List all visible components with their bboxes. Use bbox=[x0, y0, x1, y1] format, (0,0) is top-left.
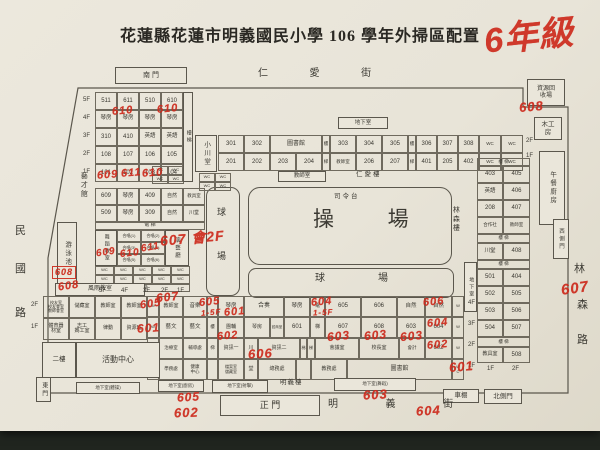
map-label: 2F bbox=[526, 138, 533, 144]
room-cell: 206 bbox=[356, 153, 382, 171]
room-cell: 504 bbox=[477, 320, 503, 337]
room-cell: 圖書館 bbox=[270, 135, 322, 153]
room-cell: 英語 bbox=[161, 128, 183, 146]
room-cell: 樓 梯 bbox=[477, 234, 530, 243]
room-cell: WC bbox=[95, 266, 114, 275]
room-cell: 401 bbox=[416, 153, 437, 171]
room-cell: 402 bbox=[458, 153, 479, 171]
room-cell: 405 bbox=[503, 166, 530, 183]
room-cell: 樓 bbox=[408, 135, 416, 153]
room-cell: WC bbox=[199, 173, 215, 182]
room-cell: 樓 梯 bbox=[477, 337, 530, 347]
room-cell: 輔導處 bbox=[183, 338, 207, 359]
red-annotation: 601 bbox=[224, 306, 246, 319]
grid-row: W C學務處健康 中心檔案室 儲藏室堂總務處教務處圖書館W C bbox=[147, 359, 464, 380]
map-label: 2F bbox=[83, 151, 90, 157]
map-label: 3F bbox=[143, 288, 150, 294]
room-cell: 108 bbox=[95, 146, 117, 164]
grid-row: 501404 bbox=[477, 269, 530, 286]
room-cell: 堂 bbox=[244, 359, 258, 380]
grid-row: 504507 bbox=[477, 320, 530, 337]
red-annotation: 610 bbox=[120, 248, 141, 260]
red-annotation: 607 bbox=[155, 290, 179, 304]
room-cell: 梯 bbox=[322, 153, 330, 171]
grid-row: W教師室音樂琴房合奏琴房電605606自然自然W bbox=[147, 296, 464, 317]
building-box: 樓梯 bbox=[183, 92, 193, 182]
red-annotation: 606 bbox=[248, 346, 273, 360]
room-cell: W bbox=[452, 296, 464, 317]
red-annotation: 603 bbox=[326, 329, 350, 343]
room-cell: WC bbox=[152, 275, 171, 284]
room-cell: 梯 bbox=[207, 338, 218, 359]
room-cell: 407 bbox=[503, 200, 530, 217]
room-cell: 203 bbox=[270, 153, 296, 171]
room-cell: 教務處 bbox=[311, 359, 347, 380]
red-annotation: 1-5F bbox=[313, 308, 334, 317]
room-cell: 508 bbox=[503, 347, 530, 363]
room-cell: 圖書館 bbox=[347, 359, 452, 380]
room-cell: 合奏 bbox=[244, 296, 284, 317]
paper-document: 花蓮縣花蓮市明義國民小學 106 學年外掃區配置 6年級 51161151061… bbox=[0, 0, 600, 431]
room-cell: WC bbox=[501, 135, 523, 153]
room-cell: WC bbox=[171, 275, 190, 284]
room-cell: 梯 bbox=[300, 338, 307, 359]
room-cell: 學務處 bbox=[159, 359, 183, 380]
map-label: 2F bbox=[468, 342, 475, 348]
room-cell: 204 bbox=[296, 153, 322, 171]
room-cell: W bbox=[452, 317, 464, 338]
room-cell: 檔案室 儲藏室 bbox=[218, 359, 244, 380]
building-box: 木工 房 bbox=[534, 117, 562, 140]
red-annotation: 604 bbox=[427, 317, 449, 330]
map-label: 球 bbox=[315, 274, 325, 285]
grid-row: WCWC bbox=[199, 173, 231, 182]
room-cell: 自然 bbox=[161, 188, 183, 205]
grid-row: 609琴房409自然教具室 bbox=[95, 188, 205, 205]
map-label: 林森樓 bbox=[452, 206, 459, 233]
room-cell: 106 bbox=[139, 146, 161, 164]
building-box: 正 門 bbox=[220, 395, 320, 416]
room-cell: 309 bbox=[139, 205, 161, 222]
room-cell: 207 bbox=[382, 153, 408, 171]
grid-row: WCWCWCWCWC bbox=[95, 266, 190, 275]
room-cell: 306 bbox=[416, 135, 437, 153]
red-annotation: 602 bbox=[427, 339, 449, 352]
room-cell: 310 bbox=[95, 128, 117, 146]
room-cell: 409 bbox=[139, 188, 161, 205]
grid-row: 樓 梯 bbox=[477, 234, 530, 243]
room-cell: 301 bbox=[218, 135, 244, 153]
building-box: 南 門 bbox=[115, 67, 187, 84]
map-label: 場 bbox=[378, 274, 388, 285]
room-cell: 304 bbox=[356, 135, 382, 153]
room-cell: 教師室 bbox=[95, 296, 121, 318]
red-annotation: 602 bbox=[217, 330, 239, 343]
room-cell bbox=[296, 359, 311, 380]
red-annotation: 607 bbox=[560, 279, 590, 298]
building-box: 地下室(體操) bbox=[76, 382, 140, 394]
room-cell: 教師室 bbox=[503, 217, 530, 234]
map-label: 路 bbox=[577, 335, 588, 347]
room-cell: 藝文 bbox=[183, 317, 207, 338]
grid-row: 310410英語英語 bbox=[95, 128, 183, 146]
red-annotation: 605 bbox=[177, 390, 201, 403]
map-label: 森 bbox=[577, 300, 588, 312]
room-cell: 609 bbox=[95, 188, 117, 205]
building-box: 地下室 bbox=[338, 117, 388, 129]
building-box: 午餐廚房 bbox=[539, 151, 565, 225]
building-box: 地下室(射擊) bbox=[212, 380, 268, 393]
room-cell: 教具室 bbox=[477, 347, 503, 363]
room-cell: WC bbox=[133, 266, 152, 275]
court-bottom bbox=[248, 268, 454, 298]
grid-row: 樓 梯 bbox=[477, 337, 530, 347]
room-cell: 403 bbox=[477, 166, 503, 183]
red-annotation: 611 bbox=[121, 167, 142, 179]
map-label: 4F bbox=[83, 115, 90, 121]
room-cell: 501 bbox=[477, 269, 503, 286]
building-box: 二樓 bbox=[42, 342, 76, 378]
room-cell: 208 bbox=[477, 200, 503, 217]
room-cell: W bbox=[452, 338, 464, 359]
room-cell: WC bbox=[199, 182, 215, 191]
red-annotation: 610 bbox=[157, 103, 179, 116]
room-cell: 樓 梯 bbox=[477, 158, 530, 166]
map-label: 操 場 bbox=[313, 209, 423, 231]
building-box: 教師室 bbox=[278, 171, 326, 182]
map-label: 司令台 bbox=[334, 194, 360, 201]
map-label: 國 bbox=[15, 264, 26, 276]
map-label: 仁愛樓 bbox=[356, 172, 382, 179]
room-cell: 體育器 材室 bbox=[43, 318, 69, 340]
room-cell: 川堂 bbox=[183, 205, 205, 222]
red-annotation: 610 bbox=[112, 105, 134, 118]
room-cell: 503 bbox=[477, 303, 503, 320]
map-label: 2F bbox=[512, 366, 519, 372]
building-box: 東門 bbox=[36, 377, 51, 402]
room-cell: 505 bbox=[503, 286, 530, 303]
grid-row: 教具室508 bbox=[477, 347, 530, 363]
red-annotation: 609 bbox=[97, 169, 119, 181]
room-cell: 205 bbox=[437, 153, 458, 171]
room-cell: 302 bbox=[244, 135, 270, 153]
room-cell: 總務處 bbox=[258, 359, 296, 380]
room-cell: 教師室 bbox=[330, 153, 356, 171]
room-cell: 儲藏室 bbox=[69, 296, 95, 318]
room-cell: 308 bbox=[458, 135, 479, 153]
grid-row: 合作社教師室 bbox=[477, 217, 530, 234]
room-cell: 梯 bbox=[408, 153, 416, 171]
map-label: 明義樓 bbox=[280, 380, 303, 387]
map-label: 民 bbox=[15, 226, 26, 238]
map-label: 路 bbox=[15, 308, 26, 320]
grid-row: 樓 梯 bbox=[477, 158, 530, 166]
grid-row: 英語406 bbox=[477, 183, 530, 200]
red-annotation: 606 bbox=[423, 296, 445, 309]
map-label: 1F bbox=[526, 153, 533, 159]
room-cell: 自然 bbox=[161, 205, 183, 222]
red-annotation: 604 bbox=[416, 403, 441, 417]
room-cell: 404 bbox=[503, 269, 530, 286]
red-annotation: 608 bbox=[518, 99, 544, 114]
map-label: 2F bbox=[31, 302, 38, 308]
map-label: 藝才館 bbox=[80, 172, 87, 199]
room-cell: 琴房 bbox=[244, 317, 270, 338]
room-cell: 406 bbox=[503, 183, 530, 200]
room-cell: 303 bbox=[330, 135, 356, 153]
grid-row: 電 梯 bbox=[95, 222, 205, 230]
room-cell: 202 bbox=[244, 153, 270, 171]
red-annotation: 603 bbox=[363, 328, 387, 342]
room-cell: 治療室 bbox=[159, 338, 183, 359]
map-label: 3F bbox=[468, 321, 475, 327]
room-cell: 305 bbox=[382, 135, 408, 153]
building-grid: 樓 梯403405英語406208407合作社教師室樓 梯川堂408樓 梯501… bbox=[477, 158, 530, 363]
map-label: 林 bbox=[574, 264, 585, 276]
map-label: 球 bbox=[217, 208, 226, 217]
room-cell: WC bbox=[114, 266, 133, 275]
room-cell: 志工 媽工室 bbox=[69, 318, 95, 340]
room-cell: 川堂 bbox=[477, 243, 503, 260]
room-cell: 諮商室 bbox=[270, 317, 284, 338]
room-cell: 電 梯 bbox=[95, 222, 205, 230]
room-cell: 健康 中心 bbox=[183, 359, 207, 380]
room-cell: 校友室 校友會室 教師會室 bbox=[43, 296, 69, 318]
room-cell: 琴房 bbox=[284, 296, 310, 317]
room-cell: 琴房 bbox=[117, 188, 139, 205]
red-annotation: 610 bbox=[142, 167, 164, 179]
room-cell: 樓 梯 bbox=[477, 260, 530, 269]
building-grid: 校友室 校友會室 教師會室儲藏室教師室教師室體育器 材室志工 媽工室律動資源班 bbox=[43, 296, 147, 340]
room-cell: 律動 bbox=[95, 318, 121, 340]
room-cell: WC bbox=[168, 175, 184, 184]
red-annotation: 603 bbox=[363, 387, 388, 401]
room-cell: 自然 bbox=[397, 296, 425, 317]
map-label: 3F bbox=[83, 133, 90, 139]
grid-row: 108107106105 bbox=[95, 146, 183, 164]
room-cell: 英語 bbox=[139, 128, 161, 146]
grid-row: 301302圖書館樓303304305樓306307308WCWC bbox=[218, 135, 523, 153]
red-annotation: 601 bbox=[137, 321, 161, 335]
grid-row: 川堂408 bbox=[477, 243, 530, 260]
map-label: 明 義 街 bbox=[328, 400, 467, 411]
room-cell: 506 bbox=[503, 303, 530, 320]
room-cell: 樓 bbox=[322, 135, 330, 153]
room-cell: 201 bbox=[218, 153, 244, 171]
map-label: 1F bbox=[83, 169, 90, 175]
red-annotation: 602 bbox=[174, 406, 199, 420]
building-box: 西側門 bbox=[553, 219, 569, 259]
room-cell: 601 bbox=[284, 317, 310, 338]
room-cell: WC bbox=[215, 182, 231, 191]
red-annotation: 603 bbox=[399, 329, 423, 343]
grid-row: 503506 bbox=[477, 303, 530, 320]
room-cell: WC bbox=[479, 135, 501, 153]
map-label: 4F bbox=[468, 300, 475, 306]
grid-row: WCWC bbox=[199, 182, 231, 191]
building-box: 活動中心 bbox=[76, 342, 160, 378]
room-cell: 410 bbox=[117, 128, 139, 146]
building-box: 小川堂 bbox=[195, 135, 217, 172]
room-cell: 琴房 bbox=[117, 205, 139, 222]
building-box: 北側門 bbox=[484, 389, 522, 404]
room-cell: WC bbox=[215, 173, 231, 182]
map-label: 仁 愛 街 bbox=[258, 69, 383, 80]
room-cell: 408 bbox=[503, 243, 530, 260]
room-cell: 藝文 bbox=[159, 317, 183, 338]
room-cell: 梯 bbox=[307, 338, 315, 359]
grid-row: 509琴房309自然川堂 bbox=[95, 205, 205, 222]
room-cell: WC bbox=[168, 166, 184, 175]
map-label: 4F bbox=[121, 288, 128, 294]
grid-row: 502505 bbox=[477, 286, 530, 303]
room-cell bbox=[207, 359, 218, 380]
red-annotation: 601 bbox=[448, 359, 474, 374]
building-grid: WCWCWCWC bbox=[199, 173, 231, 191]
room-cell: 507 bbox=[503, 320, 530, 337]
room-cell: 合唱(6) bbox=[141, 254, 165, 266]
grid-row: 體育器 材室志工 媽工室律動資源班 bbox=[43, 318, 147, 340]
red-annotation: 608 bbox=[52, 266, 76, 279]
grid-row: 208407 bbox=[477, 200, 530, 217]
room-cell: 105 bbox=[161, 146, 183, 164]
building-grid: 609琴房409自然教具室509琴房309自然川堂電 梯 bbox=[95, 188, 205, 230]
room-cell: 606 bbox=[361, 296, 397, 317]
grid-row: 403405 bbox=[477, 166, 530, 183]
room-cell: WC bbox=[152, 266, 171, 275]
map-label: 1F bbox=[487, 366, 494, 372]
map-label: 5F bbox=[83, 97, 90, 103]
room-cell: 509 bbox=[95, 205, 117, 222]
grid-row: 校友室 校友會室 教師會室儲藏室教師室教師室 bbox=[43, 296, 147, 318]
map-label: 5F bbox=[99, 288, 106, 294]
grid-row: 樓 梯 bbox=[477, 260, 530, 269]
photo-bg: { "meta": { "title": "花蓮縣花蓮市明義國民小學 106 學… bbox=[0, 0, 600, 450]
room-cell: 梯 bbox=[310, 317, 325, 338]
room-cell: 307 bbox=[437, 135, 458, 153]
room-cell: 107 bbox=[117, 146, 139, 164]
map-label: 1F bbox=[31, 324, 38, 330]
map-label: 場 bbox=[217, 252, 226, 261]
room-cell: 合作社 bbox=[477, 217, 503, 234]
room-cell: WC bbox=[171, 266, 190, 275]
room-cell: 英語 bbox=[477, 183, 503, 200]
room-cell: 502 bbox=[477, 286, 503, 303]
room-cell: 合唱(1) bbox=[117, 230, 141, 242]
